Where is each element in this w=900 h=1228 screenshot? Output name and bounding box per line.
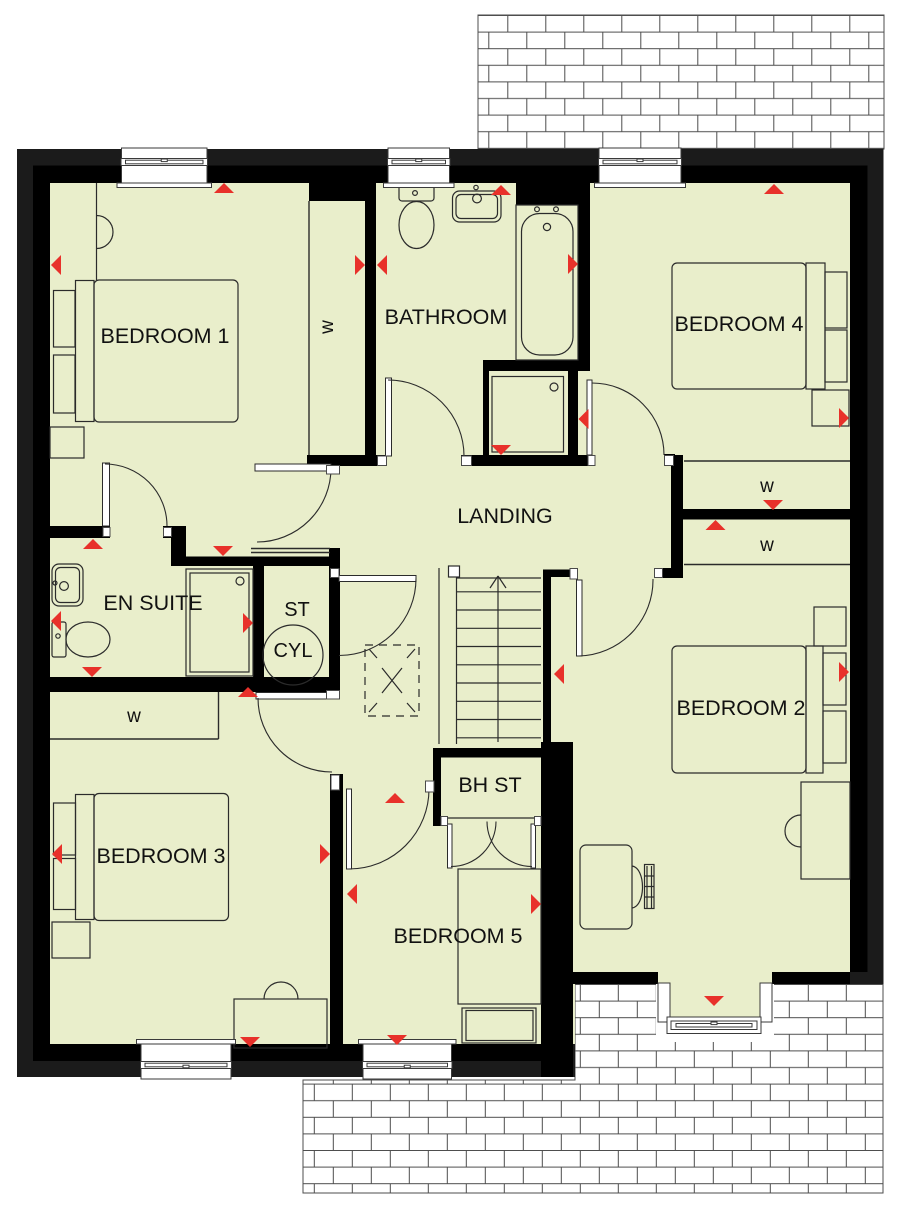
svg-text:ST: ST (284, 599, 310, 621)
svg-text:BEDROOM 4: BEDROOM 4 (674, 312, 803, 336)
svg-text:w: w (317, 320, 338, 335)
svg-text:CYL: CYL (274, 640, 313, 662)
svg-text:BEDROOM 3: BEDROOM 3 (96, 844, 225, 868)
svg-text:BEDROOM 2: BEDROOM 2 (676, 696, 805, 720)
svg-text:BH ST: BH ST (458, 773, 521, 797)
svg-text:w: w (126, 706, 141, 727)
svg-text:LANDING: LANDING (457, 504, 553, 528)
svg-text:BEDROOM 5: BEDROOM 5 (393, 924, 522, 948)
svg-text:w: w (759, 535, 774, 556)
svg-text:w: w (759, 476, 774, 497)
svg-text:BEDROOM 1: BEDROOM 1 (100, 324, 229, 348)
svg-text:EN SUITE: EN SUITE (103, 591, 202, 615)
svg-text:BATHROOM: BATHROOM (385, 305, 508, 329)
